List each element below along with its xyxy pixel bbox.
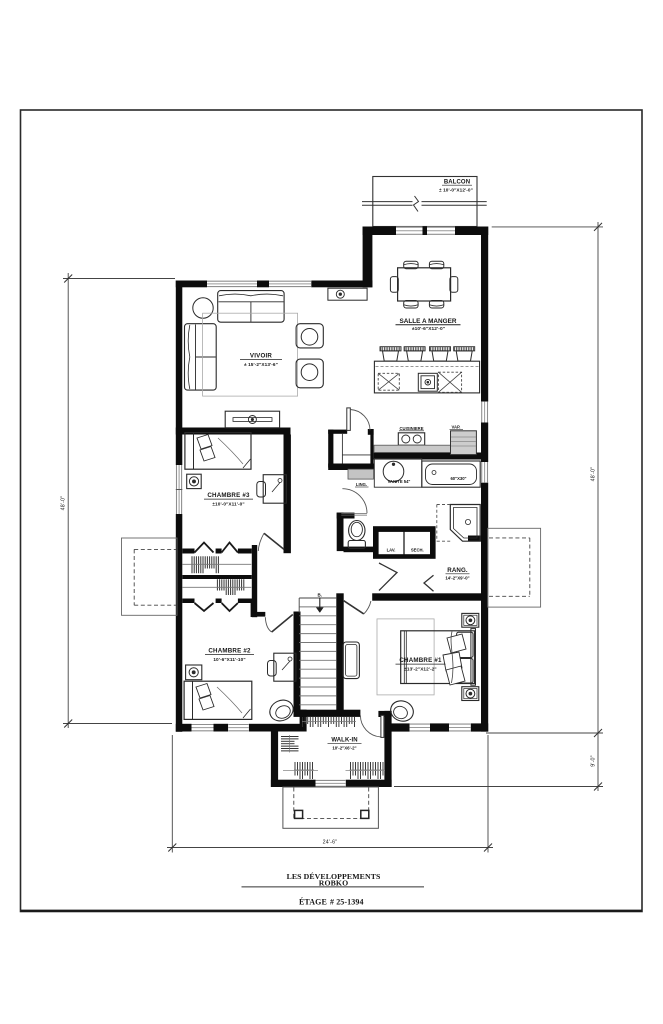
svg-text:SALLE A MANGER: SALLE A MANGER xyxy=(399,318,456,325)
svg-text:CHAMBRE #3: CHAMBRE #3 xyxy=(207,492,250,499)
svg-text:B.: B. xyxy=(318,593,323,598)
svg-text:VIVOIR: VIVOIR xyxy=(250,353,273,360)
svg-text:VAP.: VAP. xyxy=(452,424,461,429)
svg-text:48'-0": 48'-0" xyxy=(591,467,597,482)
svg-text:±13'-2"X12'-2": ±13'-2"X12'-2" xyxy=(404,666,437,671)
svg-text:ROBKO: ROBKO xyxy=(319,878,349,887)
svg-text:RANG.: RANG. xyxy=(447,567,468,574)
svg-text:ÉTAGE: ÉTAGE xyxy=(299,897,327,907)
svg-text:10'-2"X6'-2": 10'-2"X6'-2" xyxy=(332,746,356,751)
svg-text:VANITE 54": VANITE 54" xyxy=(388,479,411,484)
svg-text:60"X30": 60"X30" xyxy=(450,476,466,481)
svg-text:24'-6": 24'-6" xyxy=(323,840,338,846)
svg-text:± 15'-2"X13'-6": ± 15'-2"X13'-6" xyxy=(244,362,278,367)
svg-text:CHAMBRE #1: CHAMBRE #1 xyxy=(399,657,442,664)
svg-text:CHAMBRE #2: CHAMBRE #2 xyxy=(208,648,251,655)
svg-text:9'-0": 9'-0" xyxy=(591,755,597,767)
svg-text:LAV.: LAV. xyxy=(387,548,396,553)
svg-text:14'-2"X9'-0": 14'-2"X9'-0" xyxy=(445,576,469,581)
svg-text:10'-6"X11'-10": 10'-6"X11'-10" xyxy=(213,657,245,662)
svg-text:LING.: LING. xyxy=(356,482,367,487)
svg-text:±10'-0"X11'-0": ±10'-0"X11'-0" xyxy=(212,501,244,506)
svg-text:SECH.: SECH. xyxy=(411,548,424,553)
svg-text:48'-0": 48'-0" xyxy=(61,496,67,511)
svg-text:# 25-1394: # 25-1394 xyxy=(330,898,364,907)
svg-text:±10'-6"X12'-0": ±10'-6"X12'-0" xyxy=(412,326,445,332)
svg-text:BALCON: BALCON xyxy=(444,180,470,186)
svg-text:CUISINIERE: CUISINIERE xyxy=(400,426,424,431)
svg-text:± 10'-0"X12'-0": ± 10'-0"X12'-0" xyxy=(439,188,473,193)
svg-text:WALK-IN: WALK-IN xyxy=(331,738,357,744)
